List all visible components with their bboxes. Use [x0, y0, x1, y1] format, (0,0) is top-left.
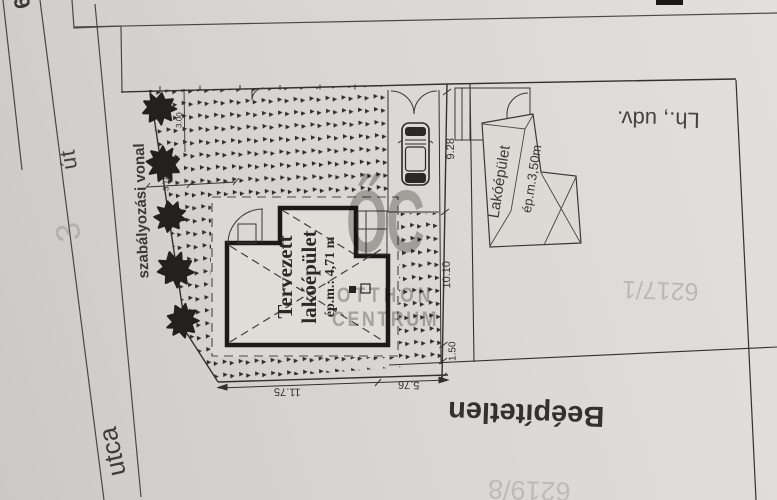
planned-building-label: Tervezett lakóépület ép.m.: 4,71 m	[273, 199, 341, 355]
scan-artifact-mark	[656, 0, 683, 5]
dimension-side-lower: 1.50	[448, 341, 459, 361]
watermark-name-line2: CENTRUM	[332, 308, 439, 332]
dimension-tree-spacing-b: 3.18	[162, 175, 171, 191]
watermark-logo: ŐC	[346, 172, 424, 273]
dimension-side-middle: 10.10	[442, 261, 454, 289]
parcel-number-bottom: 6219/8	[488, 475, 572, 500]
planned-building-label-line1: Tervezett	[273, 199, 297, 355]
planned-building-height: ép.m.: 4,71 m	[321, 199, 341, 355]
yard-label: Lh., udv.	[617, 107, 700, 132]
watermark-name-line1: OTTHON	[337, 284, 434, 308]
dimension-side-top: 9.28	[446, 138, 458, 160]
undeveloped-label: Beépítetlen	[448, 395, 605, 431]
planned-building-label-line2: lakóépület	[297, 199, 321, 355]
dimension-tree-spacing-a: 3.00	[175, 112, 184, 128]
dimension-front-left: 11.75	[274, 385, 301, 397]
site-plan-scan: ŐC OTTHON CENTRUM 6 út 3 utca szabályozá…	[0, 0, 777, 500]
dimension-front-right: 5.76	[398, 378, 420, 390]
road-label: út	[55, 148, 81, 172]
parcel-number-right: 6217/1	[622, 276, 699, 305]
